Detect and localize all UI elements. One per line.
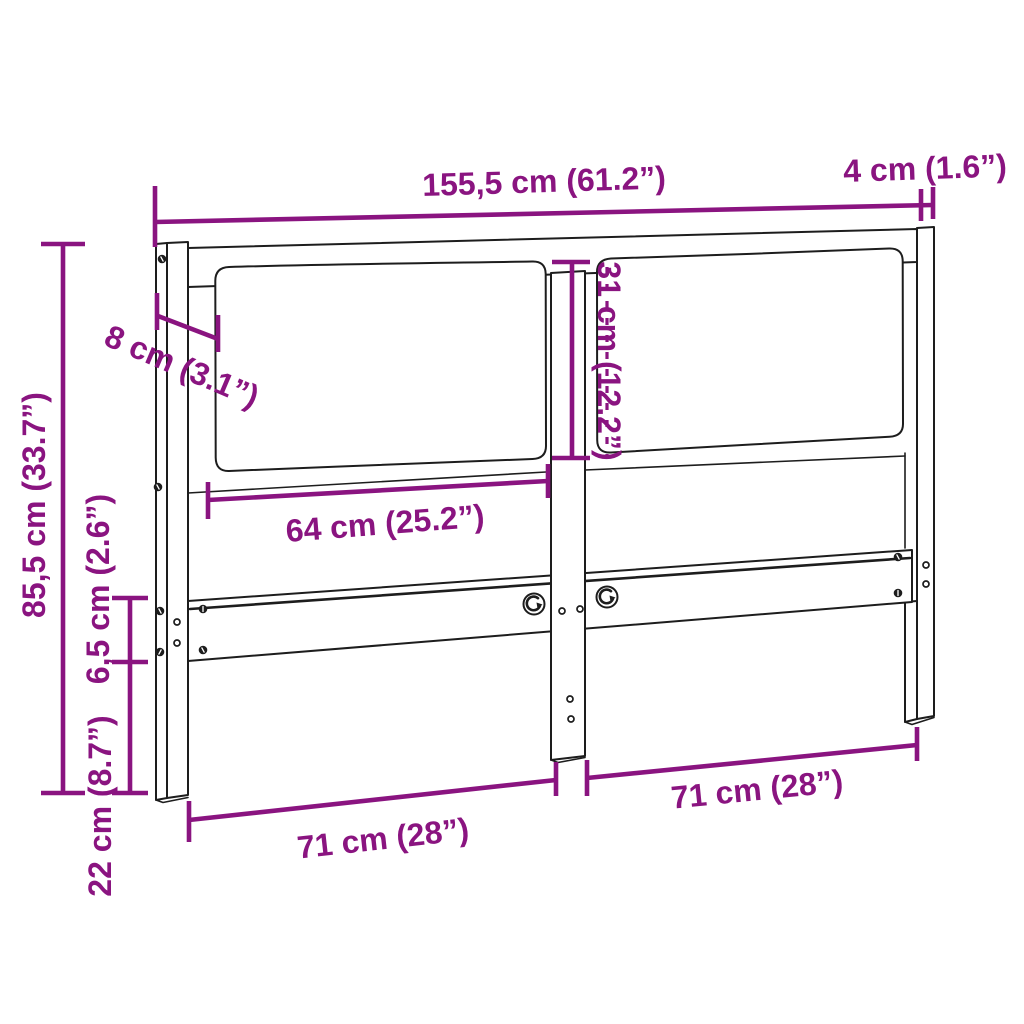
- cam-lock-left: [524, 594, 545, 615]
- hole-icon: [577, 606, 583, 612]
- label-cushion-height: 31 cm (12.2”): [591, 261, 627, 460]
- hole-icon: [559, 608, 565, 614]
- hole-icon: [923, 562, 929, 568]
- label-bottom-clearance: 22 cm (8.7”): [82, 715, 118, 896]
- hole-icon: [174, 640, 180, 646]
- left-cushion: [215, 261, 546, 471]
- headboard-drawing: [154, 227, 934, 803]
- diagram-canvas: 155,5 cm (61.2”) 4 cm (1.6”) 8 cm (3.1”)…: [0, 0, 1024, 1024]
- hole-icon: [568, 716, 574, 722]
- hole-icon: [923, 581, 929, 587]
- label-post-depth: 4 cm (1.6”): [843, 147, 1008, 189]
- right-post-leg-side: [905, 601, 917, 722]
- center-post: [551, 271, 585, 760]
- frame-batten-right: [585, 456, 905, 470]
- label-overall-width: 155,5 cm (61.2”): [422, 159, 667, 203]
- label-overall-height: 85,5 cm (33.7”): [16, 392, 52, 618]
- right-cushion: [597, 248, 903, 452]
- right-post-front: [917, 227, 934, 719]
- headboard-dimension-diagram: 155,5 cm (61.2”) 4 cm (1.6”) 8 cm (3.1”)…: [0, 0, 1024, 1024]
- label-left-section-width: 71 cm (28”): [295, 811, 470, 866]
- label-right-section-width: 71 cm (28”): [669, 763, 844, 816]
- label-cushion-width: 64 cm (25.2”): [284, 497, 485, 549]
- label-rail-height: 6,5 cm (2.6”): [80, 494, 116, 684]
- hole-icon: [567, 696, 573, 702]
- hole-icon: [174, 619, 180, 625]
- cam-lock-right: [597, 587, 618, 608]
